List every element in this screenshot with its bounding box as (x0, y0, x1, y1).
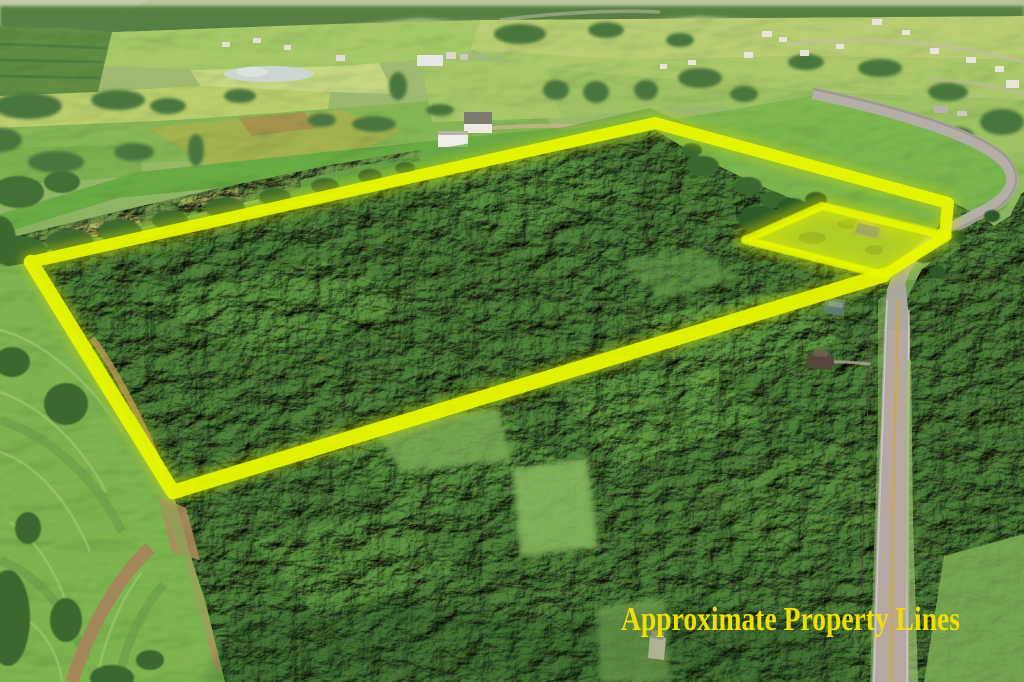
svg-text:Approximate Property Lines: Approximate Property Lines (621, 601, 960, 638)
